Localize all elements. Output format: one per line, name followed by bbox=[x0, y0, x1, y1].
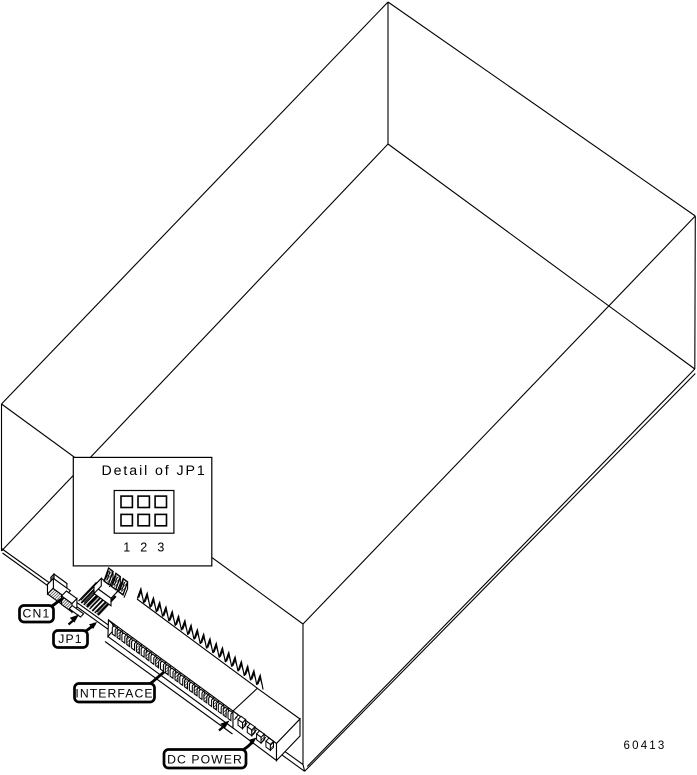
svg-text:INTERFACE: INTERFACE bbox=[75, 686, 153, 700]
svg-text:2: 2 bbox=[140, 541, 147, 555]
svg-text:1: 1 bbox=[123, 541, 130, 555]
svg-text:CN1: CN1 bbox=[23, 606, 51, 620]
svg-text:JP1: JP1 bbox=[58, 632, 83, 646]
svg-text:60413: 60413 bbox=[624, 740, 667, 752]
svg-text:Detail of JP1: Detail of JP1 bbox=[102, 463, 207, 479]
svg-text:3: 3 bbox=[157, 541, 164, 555]
svg-text:DC POWER: DC POWER bbox=[167, 752, 243, 766]
